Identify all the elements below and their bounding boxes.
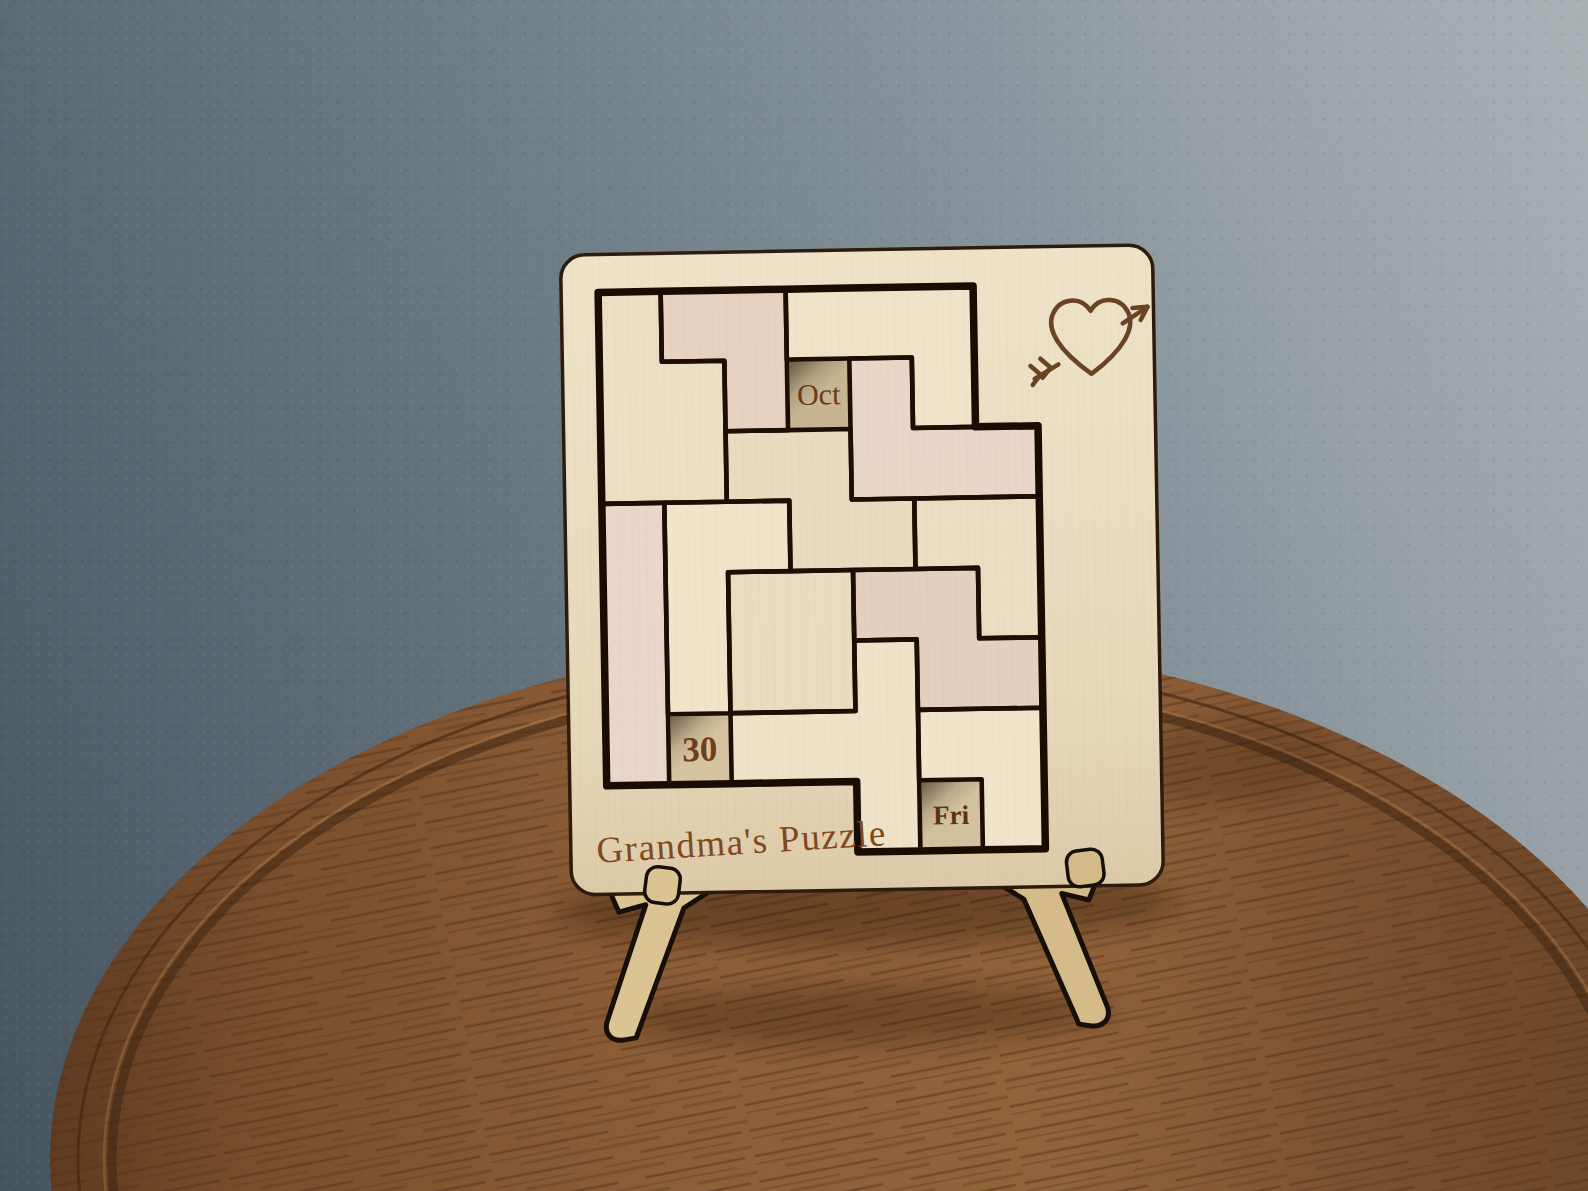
open-cell-label-fri: Fri bbox=[933, 800, 970, 831]
open-cell-label-oct: Oct bbox=[797, 377, 842, 411]
open-cell-label-30: 30 bbox=[682, 730, 718, 770]
stand-front-hook-right bbox=[1065, 848, 1105, 888]
stand-front-hook-left bbox=[643, 865, 681, 905]
scene-drawing: Oct30Fri Grandma's Puzzle bbox=[0, 0, 1588, 1191]
photo-scene: Oct30Fri Grandma's Puzzle bbox=[0, 0, 1588, 1191]
